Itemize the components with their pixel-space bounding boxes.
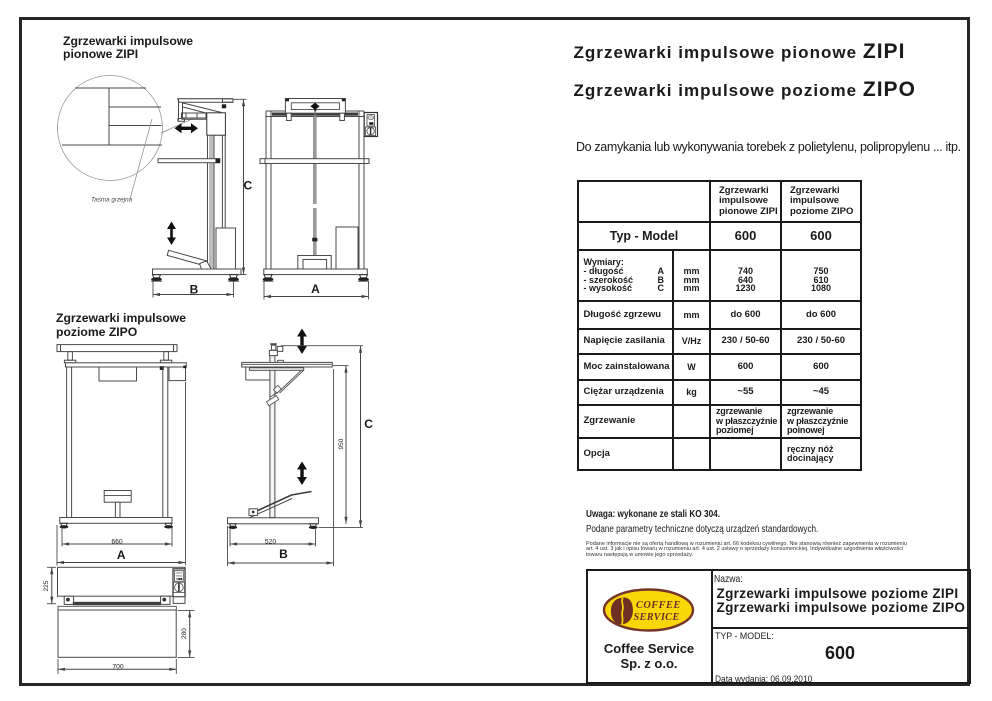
svg-text:Taśma grzejna: Taśma grzejna [91,197,133,204]
svg-text:225: 225 [43,580,50,591]
svg-text:660: 660 [111,539,123,546]
svg-text:B: B [190,283,199,297]
svg-text:700: 700 [112,664,124,671]
svg-text:280: 280 [181,628,188,639]
svg-text:950: 950 [338,438,345,449]
svg-text:A: A [311,282,320,296]
svg-text:520: 520 [265,539,277,546]
svg-text:C: C [243,179,252,193]
svg-text:A: A [117,548,126,562]
svg-text:B: B [279,547,288,561]
svg-text:C: C [364,417,373,431]
